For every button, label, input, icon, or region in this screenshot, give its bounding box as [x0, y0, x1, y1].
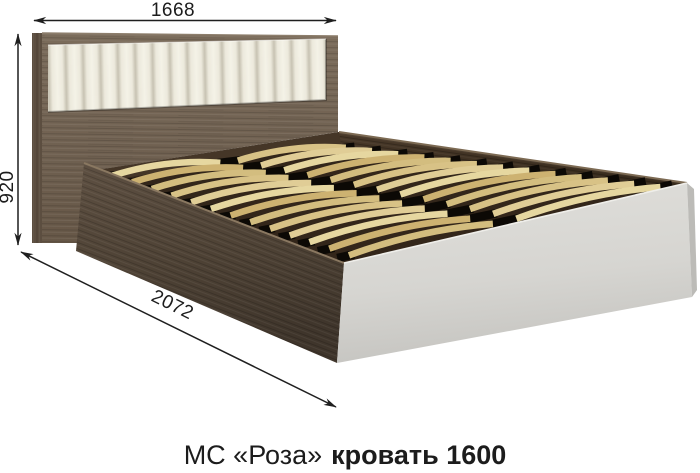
slat-holder — [241, 165, 264, 168]
slat-holder — [376, 194, 403, 199]
slat-holder — [399, 199, 427, 204]
slat-holder — [354, 189, 380, 194]
slat-holder — [422, 204, 450, 210]
diagram-canvas: 1668 920 2072 МС «Роза»кровать 1600 — [0, 0, 700, 473]
slat-holder — [331, 184, 357, 188]
dimension-height-label: 920 — [0, 170, 18, 203]
product-name-label: кровать 1600 — [331, 440, 506, 470]
product-series-label: МС «Роза» — [184, 440, 322, 470]
product-caption: МС «Роза»кровать 1600 — [184, 440, 507, 470]
slat-holder — [218, 160, 241, 163]
bed-dimension-diagram: 1668 920 2072 МС «Роза»кровать 1600 — [0, 0, 700, 473]
headboard-upholstery-insert — [48, 39, 326, 112]
slat-holder — [308, 180, 333, 184]
slat-holder — [286, 175, 310, 179]
headboard-side-edge-grain — [32, 33, 42, 243]
slat-holder — [444, 208, 473, 214]
slat-holder — [263, 170, 287, 173]
dimension-width-label: 1668 — [151, 0, 195, 21]
slat-holder — [467, 213, 497, 219]
